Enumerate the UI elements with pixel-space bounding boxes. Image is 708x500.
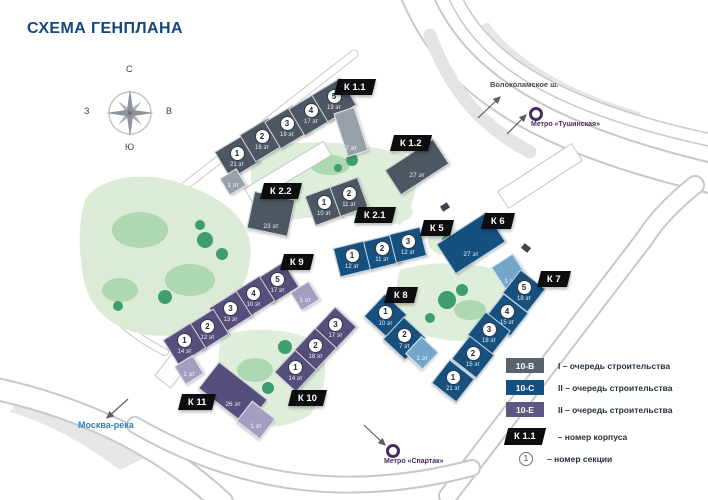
floor-count-label: 27 эт (463, 252, 478, 259)
legend-korpus-text: – номер корпуса (558, 432, 628, 442)
section-number-badge: 2 (375, 241, 390, 256)
genplan-map: СХЕМА ГЕНПЛАНА С Ю З В 121 эт216 эт319 э… (0, 0, 708, 500)
legend-korpus-tag: К 1.1 (504, 428, 546, 445)
korpus-tag: К 7 (537, 271, 571, 287)
floor-count-label: 19 эт (280, 132, 294, 138)
legend-row-phase-2c: 10-С II – очередь строительства (506, 380, 672, 395)
metro-spartak-label: Метро «Спартак» (384, 458, 444, 465)
floor-count-label: 19 эт (327, 105, 341, 111)
floor-count-label: 1 эт (183, 372, 195, 379)
building-annex: 7 эт (333, 107, 368, 158)
korpus-tag: К 11 (178, 394, 216, 410)
floor-count-label: 17 эт (270, 288, 284, 294)
floor-count-label: 21 эт (446, 386, 460, 392)
section-number-badge: 2 (397, 327, 412, 342)
legend-section-text: – номер секции (547, 454, 612, 464)
legend-swatch-10v: 10-В (506, 358, 544, 373)
legend-text-phase-2c: II – очередь строительства (558, 383, 672, 393)
section-number-badge: 1 (288, 360, 303, 375)
korpus-tag: К 2.2 (260, 183, 302, 199)
floor-count-label: 7 эт (345, 146, 357, 153)
building-annex: 1 эт (174, 355, 204, 385)
river-label: Москва-река (78, 420, 134, 430)
floor-count-label: 16 эт (255, 145, 269, 151)
section-number-badge: 3 (328, 317, 343, 332)
metro-spartak-icon (386, 444, 400, 458)
korpus-tag: К 6 (481, 213, 515, 229)
floor-count-label: 11 эт (375, 257, 389, 263)
floor-count-label: 21 эт (230, 162, 244, 168)
legend-row-phase-1: 10-В I – очередь строительства (506, 358, 672, 373)
building-annex: 1 эт (290, 281, 320, 311)
floor-count-label: 23 эт (263, 224, 278, 231)
korpus-tag: К 1.2 (390, 135, 432, 151)
section-number-badge: 3 (482, 322, 497, 337)
korpus-tag: К 2.1 (354, 207, 396, 223)
section-number-badge: 2 (308, 338, 323, 353)
legend-text-phase-2e: II – очередь строительства (558, 405, 672, 415)
section-number-badge: 1 (230, 146, 245, 161)
section-number-badge: 3 (280, 116, 295, 131)
floor-count-label: 10 эт (246, 302, 260, 308)
korpus-tag: К 10 (288, 390, 327, 406)
page-title: СХЕМА ГЕНПЛАНА (27, 20, 183, 38)
floor-count-label: 10 эт (317, 211, 331, 217)
legend-section-badge: 1 (519, 452, 533, 466)
floor-count-label: 12 эт (401, 250, 415, 256)
building-annex: 1 эт (219, 168, 246, 195)
floor-count-label: 7 эт (399, 343, 410, 349)
korpus-tag: К 5 (420, 220, 454, 236)
legend-row-phase-2e: 10-Е II – очередь строительства (506, 402, 672, 417)
metro-tushinskaya-label: Метро «Тушинская» (531, 121, 600, 128)
section-number-badge: 4 (500, 304, 515, 319)
floor-count-label: 1 эт (299, 298, 311, 305)
section-number-badge: 3 (223, 301, 238, 316)
legend-text-phase-1: I – очередь строительства (558, 361, 670, 371)
section-number-badge: 4 (304, 103, 319, 118)
korpus-tag: К 9 (280, 254, 314, 270)
section-number-badge: 2 (342, 186, 357, 201)
section-number-badge: 5 (517, 280, 532, 295)
legend-swatch-10s: 10-С (506, 380, 544, 395)
floor-count-label: 27 эт (409, 173, 424, 180)
floor-count-label: 17 эт (304, 119, 318, 125)
section-number-badge: 1 (446, 370, 461, 385)
floor-count-label: 18 эт (308, 354, 322, 360)
legend-row-korpus: К 1.1 – номер корпуса (506, 429, 672, 444)
floor-count-label: 14 эт (288, 376, 302, 382)
section-number-badge: 2 (466, 346, 481, 361)
legend-swatch-10e: 10-Е (506, 402, 544, 417)
section-number-badge: 5 (270, 272, 285, 287)
floor-count-label: 12 эт (345, 264, 359, 270)
floor-count-label: 26 эт (225, 402, 240, 409)
section-number-badge: 2 (255, 129, 270, 144)
section-number-badge: 1 (378, 304, 393, 319)
legend-row-section: 1 – номер секции (506, 451, 672, 466)
section-number-badge: 1 (177, 333, 192, 348)
floor-count-label: 1 эт (416, 356, 428, 363)
section-number-badge: 3 (401, 234, 416, 249)
section-number-badge: 1 (317, 195, 332, 210)
section-number-badge: 2 (200, 319, 215, 334)
highway-label: Волоколамское ш. (490, 80, 559, 89)
building-annex: 1 эт (405, 336, 439, 370)
legend: 10-В I – очередь строительства 10-С II –… (506, 358, 672, 473)
floor-count-label: 1 эт (227, 183, 239, 190)
floor-count-label: 17 эт (328, 333, 342, 339)
floor-count-label: 11 эт (342, 202, 356, 208)
section-number-badge: 4 (246, 286, 261, 301)
floor-count-label: 1 эт (250, 424, 262, 431)
floor-count-label: 13 эт (223, 317, 237, 323)
korpus-tag: К 1.1 (334, 79, 376, 95)
metro-tushinskaya-icon (529, 107, 543, 121)
floor-count-label: 14 эт (177, 349, 191, 355)
floor-count-label: 15 эт (466, 362, 480, 368)
section-number-badge: 1 (345, 248, 360, 263)
korpus-tag: К 8 (384, 287, 418, 303)
